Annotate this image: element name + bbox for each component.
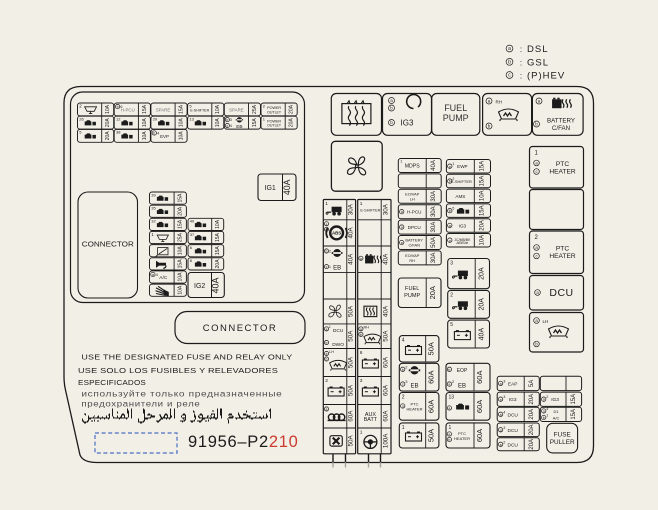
svg-text:A/C: A/C xyxy=(553,416,560,421)
svg-text:a: a xyxy=(152,273,154,277)
svg-text:b: b xyxy=(449,209,451,213)
svg-text:a: a xyxy=(500,413,502,417)
svg-text:30A: 30A xyxy=(431,206,437,217)
svg-text:FUEL: FUEL xyxy=(444,103,467,113)
svg-text:ABS: ABS xyxy=(332,231,341,236)
svg-text:10A: 10A xyxy=(215,104,221,114)
svg-text:a: a xyxy=(500,382,502,386)
svg-text:RH: RH xyxy=(364,325,370,329)
svg-text:10A: 10A xyxy=(179,118,185,128)
svg-text:EB: EB xyxy=(458,384,466,390)
svg-text:ESPECIFICADOS: ESPECIFICADOS xyxy=(78,378,146,387)
svg-text:50A: 50A xyxy=(427,429,436,442)
svg-text:b: b xyxy=(543,416,545,420)
svg-text:32: 32 xyxy=(151,219,156,224)
svg-text:10A: 10A xyxy=(178,272,184,282)
svg-text:DCU: DCU xyxy=(507,442,518,448)
svg-text:HEATER: HEATER xyxy=(407,407,423,412)
svg-text:60A: 60A xyxy=(382,356,389,368)
svg-text:50A: 50A xyxy=(427,342,436,355)
svg-text:15A: 15A xyxy=(178,219,184,229)
svg-text:EWP: EWP xyxy=(457,164,467,169)
svg-text:c: c xyxy=(535,169,537,174)
svg-text:15A: 15A xyxy=(252,118,258,128)
svg-text:15A: 15A xyxy=(215,246,221,256)
svg-text:1: 1 xyxy=(325,201,328,207)
svg-text:20A: 20A xyxy=(529,409,535,420)
svg-text:40A: 40A xyxy=(347,253,354,265)
svg-text:USE THE DESIGNATED FUSE AND RE: USE THE DESIGNATED FUSE AND RELAY ONLY xyxy=(81,353,292,362)
svg-text:26: 26 xyxy=(79,117,84,122)
svg-text:PTC: PTC xyxy=(556,161,569,168)
svg-text:2: 2 xyxy=(503,440,505,444)
svg-text:20A: 20A xyxy=(479,267,486,280)
svg-text:60A: 60A xyxy=(427,371,436,384)
svg-text:40: 40 xyxy=(190,219,195,224)
svg-text:60A: 60A xyxy=(427,400,436,413)
svg-text:20A: 20A xyxy=(178,206,184,216)
svg-text:37: 37 xyxy=(190,232,195,237)
svg-text:20A: 20A xyxy=(105,118,111,128)
svg-text:HEATER: HEATER xyxy=(549,253,575,260)
svg-text:2: 2 xyxy=(402,395,405,401)
svg-text:20A: 20A xyxy=(105,131,111,141)
svg-text:a: a xyxy=(401,210,403,214)
svg-text:c: c xyxy=(326,265,328,269)
svg-text:CONNECTOR: CONNECTOR xyxy=(203,323,278,334)
svg-text:4: 4 xyxy=(156,273,158,277)
svg-text:1: 1 xyxy=(452,162,454,166)
svg-text:91956–P2210: 91956–P2210 xyxy=(188,433,298,451)
svg-text:60A: 60A xyxy=(475,429,484,442)
svg-text:3: 3 xyxy=(450,261,453,267)
svg-text:IG3: IG3 xyxy=(509,397,517,403)
svg-text:3: 3 xyxy=(230,118,232,122)
svg-text:13: 13 xyxy=(189,117,194,122)
svg-text:PULLER: PULLER xyxy=(550,439,575,446)
svg-text:DCU: DCU xyxy=(549,287,573,299)
svg-text:a: a xyxy=(448,383,450,387)
svg-text:25A: 25A xyxy=(252,104,258,114)
svg-text:a: a xyxy=(449,165,451,169)
svg-text:b: b xyxy=(226,118,228,122)
svg-text:15A: 15A xyxy=(179,104,185,114)
svg-text:HEATER: HEATER xyxy=(454,436,470,441)
svg-text:b: b xyxy=(448,368,450,372)
svg-text:4: 4 xyxy=(230,124,232,128)
svg-text:6: 6 xyxy=(360,350,363,356)
svg-text:EAP: EAP xyxy=(508,381,518,387)
svg-text:GSL: GSL xyxy=(527,57,549,68)
svg-text:PUMP: PUMP xyxy=(404,293,420,299)
svg-text:D1: D1 xyxy=(554,409,560,414)
svg-text:a: a xyxy=(326,352,328,356)
svg-text:EB: EB xyxy=(333,266,341,272)
svg-text:1: 1 xyxy=(449,425,452,431)
svg-text:30A: 30A xyxy=(382,203,389,215)
svg-text:a: a xyxy=(401,241,403,245)
svg-text:35: 35 xyxy=(151,206,156,211)
svg-text:20A: 20A xyxy=(289,104,295,114)
svg-text:38: 38 xyxy=(116,130,121,135)
svg-text:E-SHIFTER: E-SHIFTER xyxy=(451,180,472,184)
svg-text:LH: LH xyxy=(329,350,334,354)
svg-text:1: 1 xyxy=(400,160,402,164)
svg-text:PTC: PTC xyxy=(556,246,569,253)
svg-text:b: b xyxy=(117,105,119,109)
svg-text:3: 3 xyxy=(503,395,505,399)
svg-text::: : xyxy=(520,58,522,67)
svg-text:5: 5 xyxy=(450,322,453,328)
svg-text:29: 29 xyxy=(153,117,158,122)
svg-text:a: a xyxy=(401,226,403,230)
svg-text:b: b xyxy=(153,132,155,136)
svg-text:50A: 50A xyxy=(347,305,354,317)
svg-text:10A: 10A xyxy=(179,131,185,141)
svg-text:a: a xyxy=(326,408,328,412)
svg-text:b: b xyxy=(448,438,450,442)
svg-text:LH: LH xyxy=(543,319,549,324)
svg-text:E-SHIFTER: E-SHIFTER xyxy=(360,209,380,213)
svg-text:10A: 10A xyxy=(480,235,486,246)
svg-text:60A: 60A xyxy=(475,400,484,413)
svg-text:1: 1 xyxy=(546,414,548,418)
svg-text:c: c xyxy=(535,254,537,259)
svg-text:IG3: IG3 xyxy=(401,119,414,128)
svg-text::: : xyxy=(520,45,522,54)
svg-text:IG3: IG3 xyxy=(551,397,559,403)
svg-text:100A: 100A xyxy=(382,433,389,448)
svg-text:2: 2 xyxy=(450,292,453,298)
svg-text:3: 3 xyxy=(360,378,363,384)
svg-text:b: b xyxy=(402,368,404,372)
svg-text:b: b xyxy=(326,341,328,345)
svg-text:RH: RH xyxy=(409,258,415,263)
svg-text:1: 1 xyxy=(329,325,331,329)
svg-text:BATT: BATT xyxy=(364,417,378,423)
svg-text:H-PCU: H-PCU xyxy=(407,210,422,215)
svg-text:a: a xyxy=(402,405,404,409)
svg-text:30A: 30A xyxy=(347,203,354,215)
svg-text:EB: EB xyxy=(410,384,418,390)
svg-text:ABS/e: ABS/e xyxy=(456,241,468,245)
svg-text:25A: 25A xyxy=(178,232,184,242)
svg-text:AMS: AMS xyxy=(455,194,465,199)
svg-text:IG3: IG3 xyxy=(459,223,467,228)
svg-text:20A: 20A xyxy=(529,439,535,450)
svg-text:50A: 50A xyxy=(347,435,354,447)
svg-text:a: a xyxy=(500,443,502,447)
svg-text:10A: 10A xyxy=(178,246,184,256)
svg-text:a: a xyxy=(360,257,362,261)
svg-text:15A: 15A xyxy=(178,193,184,203)
svg-text:40A: 40A xyxy=(382,253,389,265)
svg-text:SPARE: SPARE xyxy=(229,108,244,113)
svg-text:15A: 15A xyxy=(142,104,148,114)
svg-text:b: b xyxy=(508,59,511,65)
svg-text:FUEL: FUEL xyxy=(405,286,419,292)
svg-text:(P)HEV: (P)HEV xyxy=(527,71,565,82)
svg-text:E-SHIFTER: E-SHIFTER xyxy=(190,109,209,113)
svg-text:60A: 60A xyxy=(347,410,354,422)
svg-text:60A: 60A xyxy=(475,371,484,384)
svg-text:4: 4 xyxy=(157,131,159,135)
svg-text:30A: 30A xyxy=(431,222,437,233)
svg-text:a: a xyxy=(543,398,545,402)
svg-text:10A: 10A xyxy=(480,190,486,201)
svg-text:15A: 15A xyxy=(480,161,486,172)
svg-text:EOP: EOP xyxy=(457,368,468,374)
svg-text:4: 4 xyxy=(503,410,505,414)
svg-text:20A: 20A xyxy=(529,394,535,405)
svg-text:2: 2 xyxy=(329,250,331,254)
svg-text:a: a xyxy=(500,428,502,432)
svg-text:b: b xyxy=(326,250,328,254)
svg-text:FUSE: FUSE xyxy=(554,432,571,439)
svg-text:1: 1 xyxy=(360,201,363,207)
svg-text:30A: 30A xyxy=(431,191,437,202)
svg-text:50A: 50A xyxy=(382,330,389,342)
svg-text::: : xyxy=(520,72,522,81)
svg-text:10A: 10A xyxy=(105,104,111,114)
svg-text:2: 2 xyxy=(546,395,548,399)
svg-text:1: 1 xyxy=(360,430,363,436)
svg-text:a: a xyxy=(448,407,450,411)
svg-text:15A: 15A xyxy=(571,394,577,405)
svg-text:OUTLET: OUTLET xyxy=(267,124,281,128)
svg-text:5A: 5A xyxy=(529,380,535,387)
svg-text:b: b xyxy=(326,358,328,362)
svg-text:3: 3 xyxy=(503,426,505,430)
svg-text:10A: 10A xyxy=(215,219,221,229)
svg-text:предохранители и реле: предохранители и реле xyxy=(81,400,200,409)
svg-text:EB: EB xyxy=(236,124,242,130)
svg-text:c: c xyxy=(402,383,404,387)
svg-text:20A: 20A xyxy=(529,424,535,435)
svg-text:a: a xyxy=(543,410,545,414)
svg-text:15A: 15A xyxy=(178,259,184,269)
svg-text:10A: 10A xyxy=(215,118,221,128)
svg-text:39: 39 xyxy=(151,192,156,197)
svg-text:50A: 50A xyxy=(347,356,354,368)
svg-text:a: a xyxy=(360,327,362,331)
svg-text:40A: 40A xyxy=(211,277,221,293)
svg-text:DSL: DSL xyxy=(527,44,548,55)
svg-text:b: b xyxy=(360,333,362,337)
svg-text:3: 3 xyxy=(503,379,505,383)
svg-text:60A: 60A xyxy=(382,384,389,396)
svg-text:4: 4 xyxy=(546,407,548,411)
svg-text:20A: 20A xyxy=(215,259,221,269)
svg-text:15A: 15A xyxy=(571,409,577,420)
svg-text:a: a xyxy=(508,46,511,52)
svg-text:DCU: DCU xyxy=(333,328,344,334)
svg-text:40A: 40A xyxy=(347,227,354,239)
svg-text:OUTLET: OUTLET xyxy=(267,111,281,115)
svg-text:a: a xyxy=(326,327,328,331)
svg-text:15A: 15A xyxy=(480,205,486,216)
svg-text:a: a xyxy=(326,222,328,226)
svg-text:a: a xyxy=(449,239,451,243)
svg-text:HEATER: HEATER xyxy=(549,169,575,176)
svg-text:DCU: DCU xyxy=(507,412,518,418)
svg-text:1: 1 xyxy=(329,265,331,269)
svg-text:CONNECTOR: CONNECTOR xyxy=(82,240,135,249)
svg-text:BATTERY: BATTERY xyxy=(547,118,575,125)
svg-text:50A: 50A xyxy=(347,384,354,396)
svg-text:C/FAN: C/FAN xyxy=(408,243,420,248)
svg-text:IG1: IG1 xyxy=(265,185,276,192)
svg-text:50A: 50A xyxy=(431,237,437,248)
svg-text:DWO: DWO xyxy=(332,342,344,348)
svg-text:20A: 20A xyxy=(289,118,295,128)
svg-text:SPARE: SPARE xyxy=(156,108,171,113)
svg-text:A/C: A/C xyxy=(159,275,168,281)
svg-text:a: a xyxy=(448,433,450,437)
svg-text:10A: 10A xyxy=(142,118,148,128)
svg-text:10A: 10A xyxy=(178,285,184,295)
svg-text:13: 13 xyxy=(449,395,455,401)
svg-text:15A: 15A xyxy=(480,176,486,187)
svg-text:PUMP: PUMP xyxy=(443,113,469,123)
svg-text:20A: 20A xyxy=(479,298,486,311)
svg-text:LH: LH xyxy=(410,196,415,201)
svg-text:USE SOLO LOS FUSIBLES Y RELEVA: USE SOLO LOS FUSIBLES Y RELEVADORES xyxy=(78,366,278,375)
svg-text:40A: 40A xyxy=(382,305,389,317)
svg-text:50A: 50A xyxy=(347,330,354,342)
svg-text:40A: 40A xyxy=(431,160,437,171)
svg-text:a: a xyxy=(500,398,502,402)
svg-text:MDPS: MDPS xyxy=(405,164,421,170)
svg-text:30A: 30A xyxy=(431,253,437,264)
svg-text:DPCU: DPCU xyxy=(408,225,421,230)
svg-text:20A: 20A xyxy=(428,286,437,299)
svg-text:C/FAN: C/FAN xyxy=(552,125,570,132)
svg-text:15A: 15A xyxy=(215,232,221,242)
svg-text:5: 5 xyxy=(452,207,454,211)
svg-text:EVP: EVP xyxy=(160,134,169,139)
svg-text:используйте только предназначе: используйте только предназначенные xyxy=(81,390,282,399)
svg-text:12: 12 xyxy=(116,117,121,122)
svg-text:a: a xyxy=(449,224,451,228)
svg-text:10A: 10A xyxy=(142,131,148,141)
svg-text:40A: 40A xyxy=(282,179,292,195)
svg-text:40A: 40A xyxy=(479,328,486,341)
svg-text:2: 2 xyxy=(325,378,328,384)
svg-text:DCU: DCU xyxy=(507,428,518,434)
svg-text:H-PCU: H-PCU xyxy=(121,108,135,113)
svg-text:RH: RH xyxy=(496,100,503,105)
svg-text:60A: 60A xyxy=(382,410,389,422)
svg-text:c: c xyxy=(226,124,228,128)
svg-text:4: 4 xyxy=(402,338,405,344)
svg-text:b: b xyxy=(326,228,328,232)
svg-text:1: 1 xyxy=(402,425,405,431)
svg-text:IG2: IG2 xyxy=(194,283,205,290)
svg-text:20A: 20A xyxy=(480,220,486,231)
